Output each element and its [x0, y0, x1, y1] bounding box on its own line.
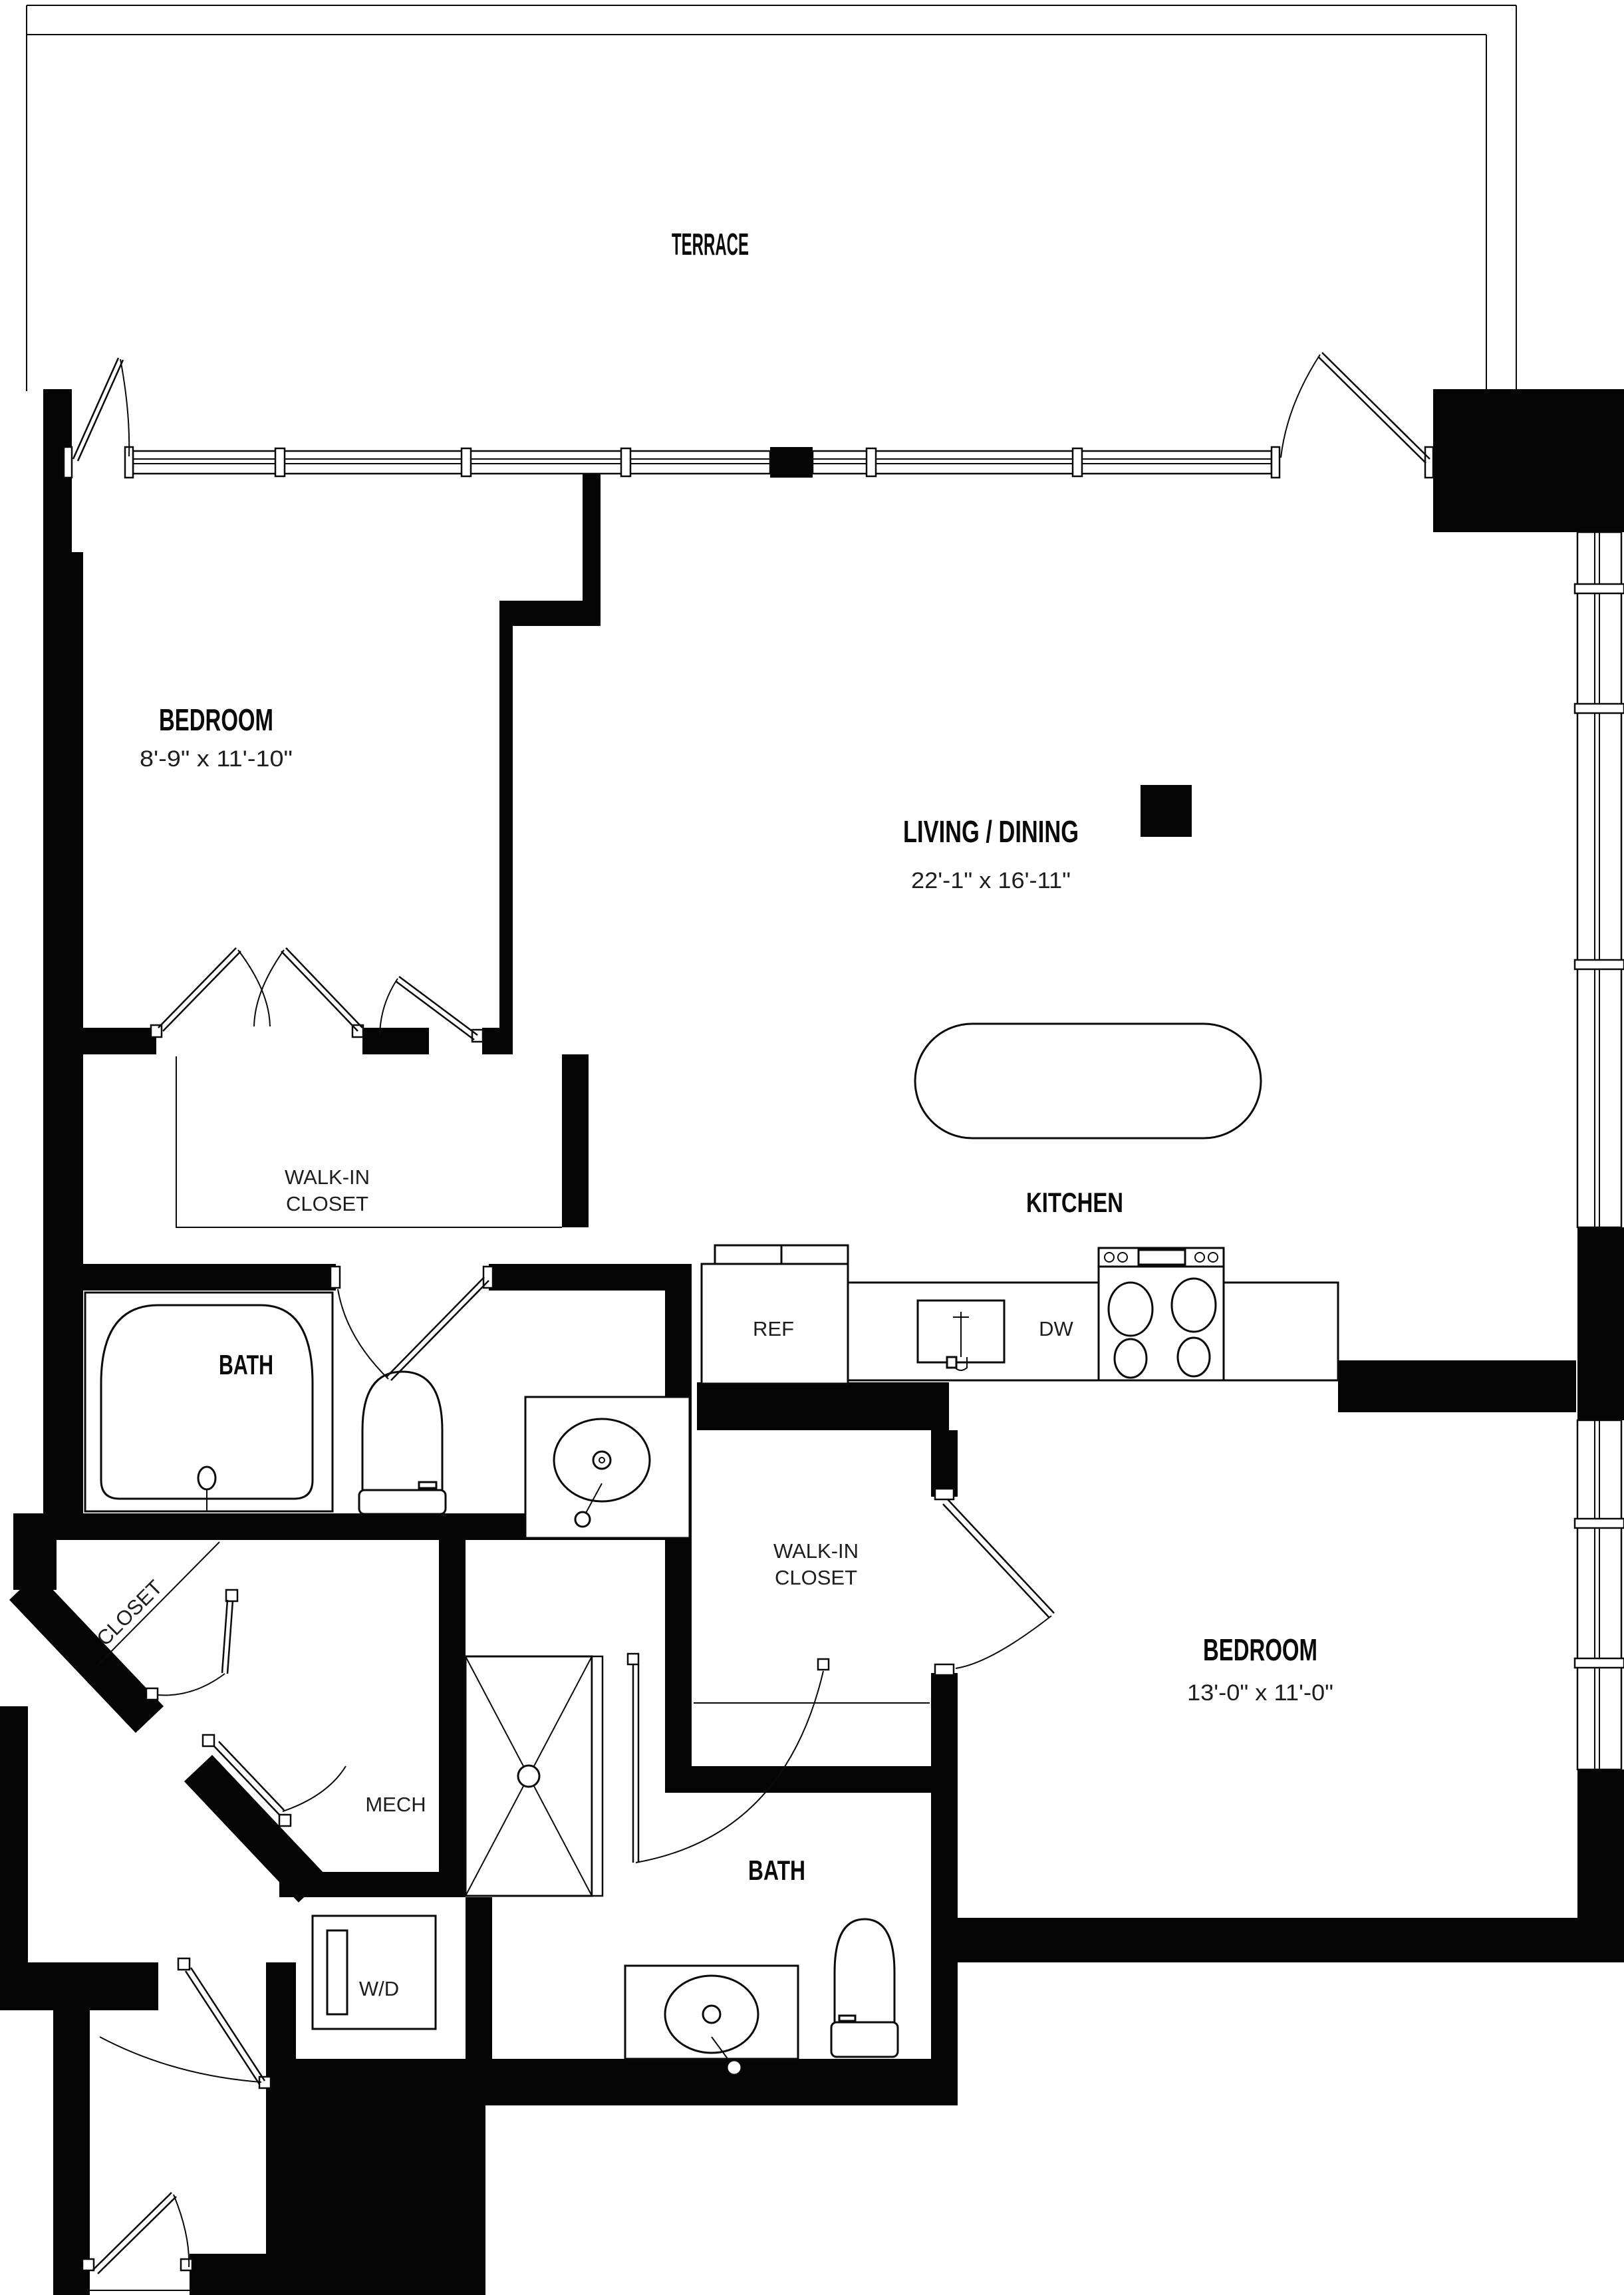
- room-label-walkin-closet2-line1: WALK-IN: [773, 1539, 859, 1563]
- room-label-wd: W/D: [359, 1977, 399, 2000]
- window-wall-right-bedroom2: [1575, 1420, 1624, 1769]
- appliance-label-dw: DW: [1039, 1317, 1073, 1340]
- floor-plan-svg: TERRACE BEDROOM 8'-9" x 11'-10" LIVING /…: [0, 0, 1624, 2295]
- room-label-walkin-closet2-line2: CLOSET: [775, 1566, 857, 1589]
- room-label-bath2: BATH: [748, 1855, 805, 1886]
- bedroom2-door: [935, 1489, 1054, 1675]
- room-dims-bedroom2: 13'-0" x 11'-0": [1187, 1680, 1333, 1706]
- bath2-door: [628, 1654, 829, 1863]
- toilet-icon-bath1: [359, 1372, 446, 1514]
- sink-vanity-icon-bath1: [525, 1397, 690, 1538]
- kitchen-island: [915, 1024, 1261, 1138]
- stove-icon: [1099, 1248, 1224, 1380]
- window-wall-right-living: [1575, 532, 1624, 1227]
- refrigerator-icon: [702, 1245, 848, 1384]
- bath1-door: [331, 1267, 493, 1380]
- room-dims-living-dining: 22'-1" x 16'-11": [911, 868, 1071, 893]
- room-label-bedroom2: BEDROOM: [1203, 1632, 1317, 1667]
- toilet-icon-bath2: [831, 1919, 898, 2057]
- room-label-kitchen: KITCHEN: [1026, 1187, 1123, 1218]
- bedroom1-closet-double-door: [151, 948, 363, 1037]
- appliance-label-ref: REF: [753, 1317, 794, 1340]
- terrace-outline: [27, 5, 1516, 399]
- room-label-mech: MECH: [365, 1793, 426, 1816]
- terrace-door-right: [1281, 353, 1430, 463]
- washer-dryer-icon: [313, 1916, 436, 2029]
- bathtub-icon: [85, 1293, 333, 1511]
- walk-in-closet1-millwork: [176, 1056, 562, 1227]
- room-label-bath1: BATH: [219, 1349, 273, 1380]
- room-label-walkin-closet1-line2: CLOSET: [286, 1192, 368, 1215]
- sink-vanity-icon-bath2: [625, 1966, 798, 2075]
- room-label-walkin-closet1-line1: WALK-IN: [285, 1165, 370, 1189]
- room-label-bedroom1: BEDROOM: [159, 702, 273, 737]
- hall-closet-door: [146, 1590, 237, 1700]
- shower-icon: [466, 1656, 603, 1896]
- closet-diagonal-line: [96, 1542, 219, 1666]
- room-label-closet-diagonal: CLOSET: [92, 1575, 166, 1650]
- kitchen-sink-icon: [918, 1300, 1004, 1370]
- floor-plan-page: TERRACE BEDROOM 8'-9" x 11'-10" LIVING /…: [0, 0, 1624, 2295]
- room-dims-bedroom1: 8'-9" x 11'-10": [140, 746, 293, 772]
- entry-door: [82, 2193, 192, 2290]
- room-label-terrace: TERRACE: [672, 227, 749, 261]
- structural-column: [1141, 785, 1192, 837]
- room-label-living-dining: LIVING / DINING: [903, 814, 1079, 849]
- window-wall-top: [64, 447, 1433, 478]
- terrace-door-left: [73, 358, 129, 461]
